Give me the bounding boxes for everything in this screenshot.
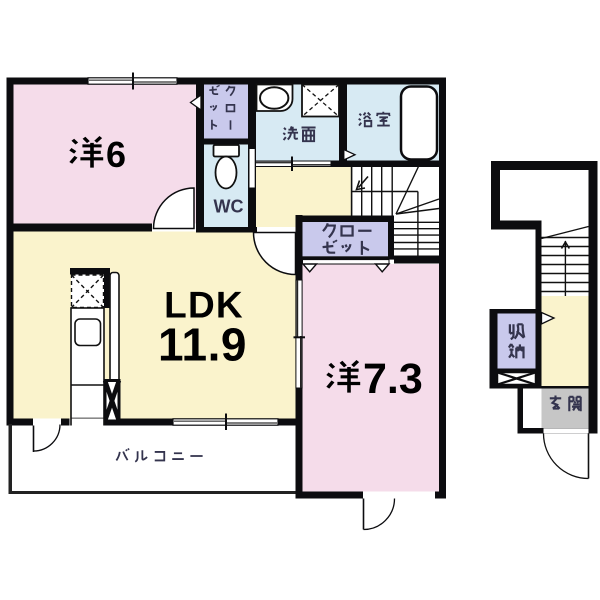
svg-text:6: 6 [106, 134, 126, 175]
svg-text:WC: WC [214, 197, 244, 217]
svg-text:11.9: 11.9 [158, 319, 247, 371]
svg-text:7.3: 7.3 [363, 355, 423, 403]
